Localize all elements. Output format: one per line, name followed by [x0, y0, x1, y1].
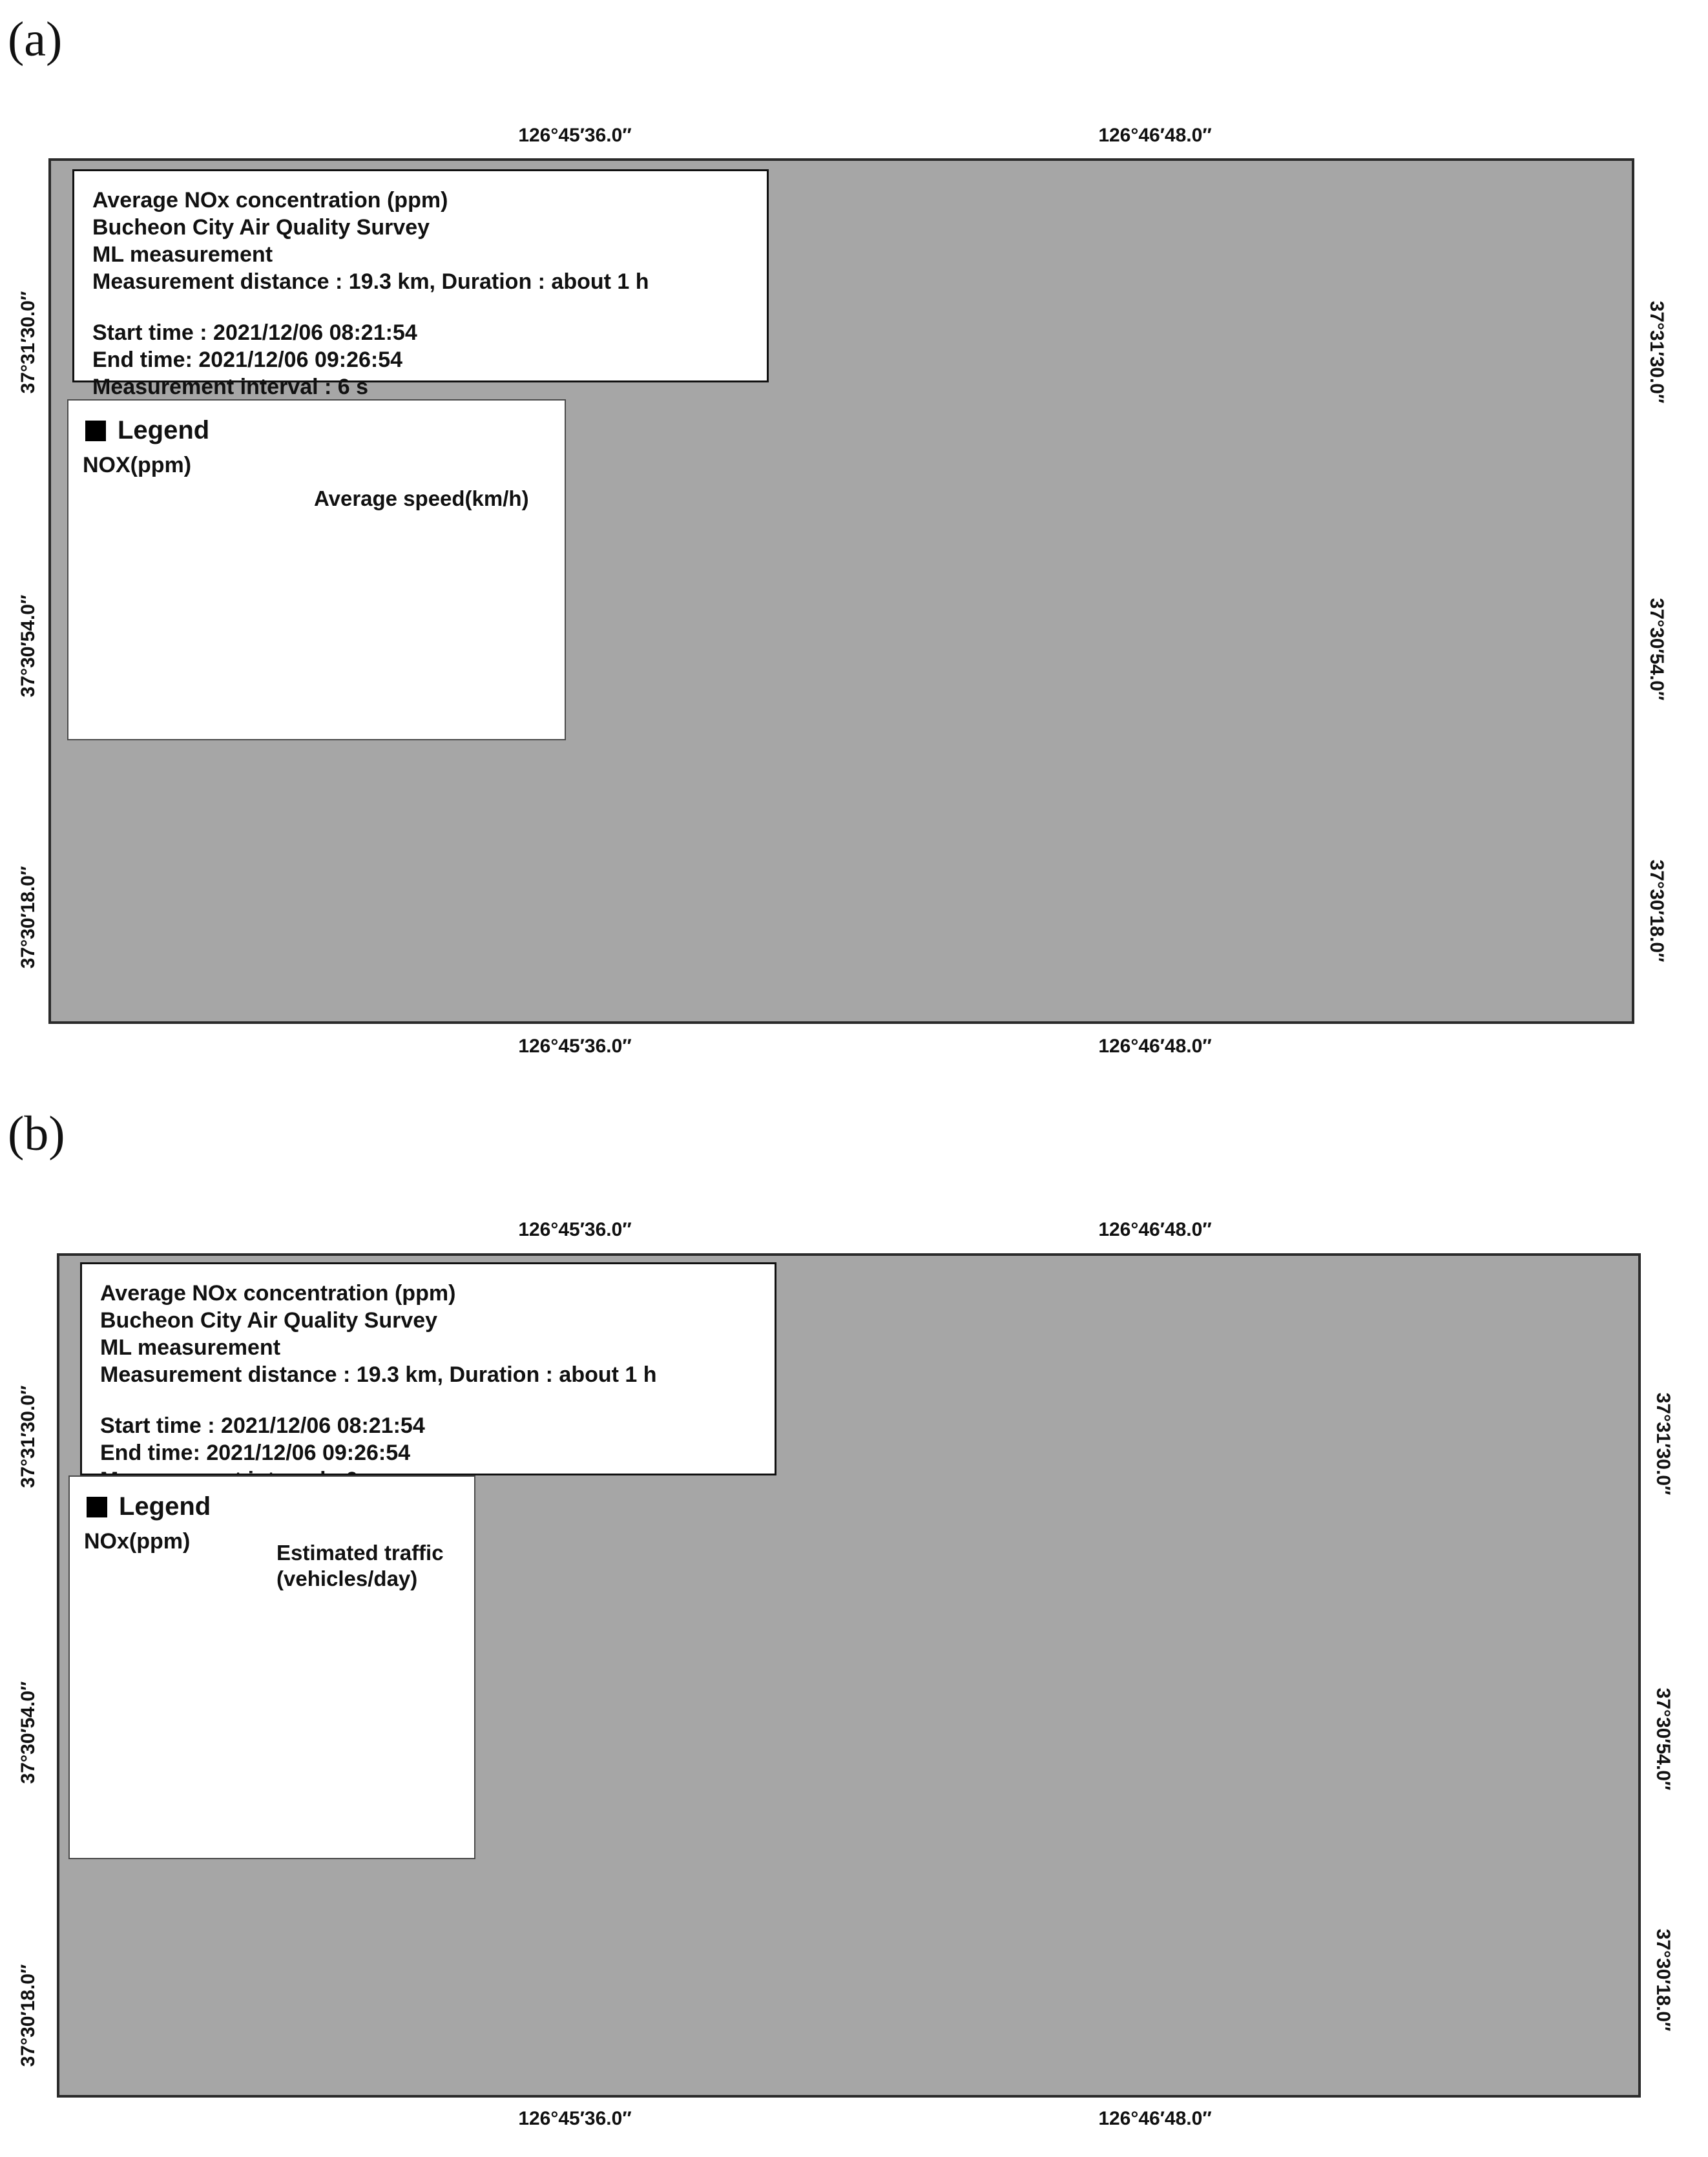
legend-box-b: Legend NOx(ppm) Estimated traffic (vehic…: [68, 1475, 475, 1859]
info-b-line1: Average NOx concentration (ppm): [100, 1280, 756, 1307]
legend-square-icon: [85, 421, 106, 441]
axis-b-right-lat-2: 37°30′54.0″: [1652, 1688, 1674, 1791]
axis-a-top-lon-2: 126°46′48.0″: [1098, 125, 1211, 147]
legend-b-traffic-label: Estimated traffic: [276, 1541, 461, 1565]
legend-b-traffic-sublabel: (vehicles/day): [276, 1567, 461, 1591]
axis-b-top-lon-2: 126°46′48.0″: [1098, 1219, 1211, 1241]
axis-b-right-lat-3: 37°30′18.0″: [1652, 1929, 1674, 2032]
info-a-line5: Start time : 2021/12/06 08:21:54: [92, 319, 749, 346]
legend-b-title: Legend: [119, 1492, 211, 1521]
axis-a-bottom-lon-1: 126°45′36.0″: [518, 1036, 631, 1058]
axis-a-right-lat-2: 37°30′54.0″: [1645, 598, 1667, 701]
axis-b-left-lat-2: 37°30′54.0″: [17, 1682, 39, 1784]
info-box-b: Average NOx concentration (ppm) Bucheon …: [80, 1262, 776, 1475]
axis-b-bottom-lon-1: 126°45′36.0″: [518, 2108, 631, 2130]
axis-a-right-lat-3: 37°30′18.0″: [1645, 860, 1667, 963]
legend-square-icon: [87, 1497, 107, 1517]
axis-b-right-lat-1: 37°31′30.0″: [1652, 1393, 1674, 1495]
axis-b-top-lon-1: 126°45′36.0″: [518, 1219, 631, 1241]
axis-b-left-lat-1: 37°31′30.0″: [17, 1386, 39, 1488]
axis-b-left-lat-3: 37°30′18.0″: [17, 1964, 39, 2067]
axis-a-left-lat-1: 37°31′30.0″: [17, 291, 39, 394]
info-a-line3: ML measurement: [92, 241, 749, 268]
info-a-line6: End time: 2021/12/06 09:26:54: [92, 346, 749, 373]
legend-box-a: Legend NOX(ppm) Average speed(km/h): [67, 399, 566, 740]
figure-page: { "figure": { "panel_a_label": "(a)", "p…: [0, 0, 1708, 2157]
info-b-line6: End time: 2021/12/06 09:26:54: [100, 1439, 756, 1466]
axis-a-left-lat-3: 37°30′18.0″: [17, 866, 39, 969]
legend-a-speed-label: Average speed(km/h): [314, 486, 552, 511]
axis-a-right-lat-1: 37°31′30.0″: [1645, 301, 1667, 404]
info-a-line7: Measurement interval : 6 s: [92, 373, 749, 401]
legend-a-nox-label: NOX(ppm): [83, 453, 314, 478]
info-box-a: Average NOx concentration (ppm) Bucheon …: [72, 169, 769, 382]
legend-a-header: Legend: [85, 416, 552, 445]
axis-a-left-lat-2: 37°30′54.0″: [17, 595, 39, 698]
legend-a-title: Legend: [118, 416, 209, 445]
info-b-line3: ML measurement: [100, 1334, 756, 1361]
axis-b-bottom-lon-2: 126°46′48.0″: [1098, 2108, 1211, 2130]
info-b-line4: Measurement distance : 19.3 km, Duration…: [100, 1361, 756, 1388]
axis-a-bottom-lon-2: 126°46′48.0″: [1098, 1036, 1211, 1058]
panel-a-letter: (a): [8, 12, 62, 68]
panel-b-letter: (b): [8, 1106, 65, 1162]
info-b-line2: Bucheon City Air Quality Survey: [100, 1307, 756, 1334]
axis-a-top-lon-1: 126°45′36.0″: [518, 125, 631, 147]
legend-b-header: Legend: [87, 1492, 461, 1521]
info-a-line4: Measurement distance : 19.3 km, Duration…: [92, 268, 749, 295]
info-b-line5: Start time : 2021/12/06 08:21:54: [100, 1412, 756, 1439]
legend-b-nox-label: NOx(ppm): [84, 1529, 276, 1554]
info-a-line2: Bucheon City Air Quality Survey: [92, 214, 749, 241]
info-a-line1: Average NOx concentration (ppm): [92, 187, 749, 214]
